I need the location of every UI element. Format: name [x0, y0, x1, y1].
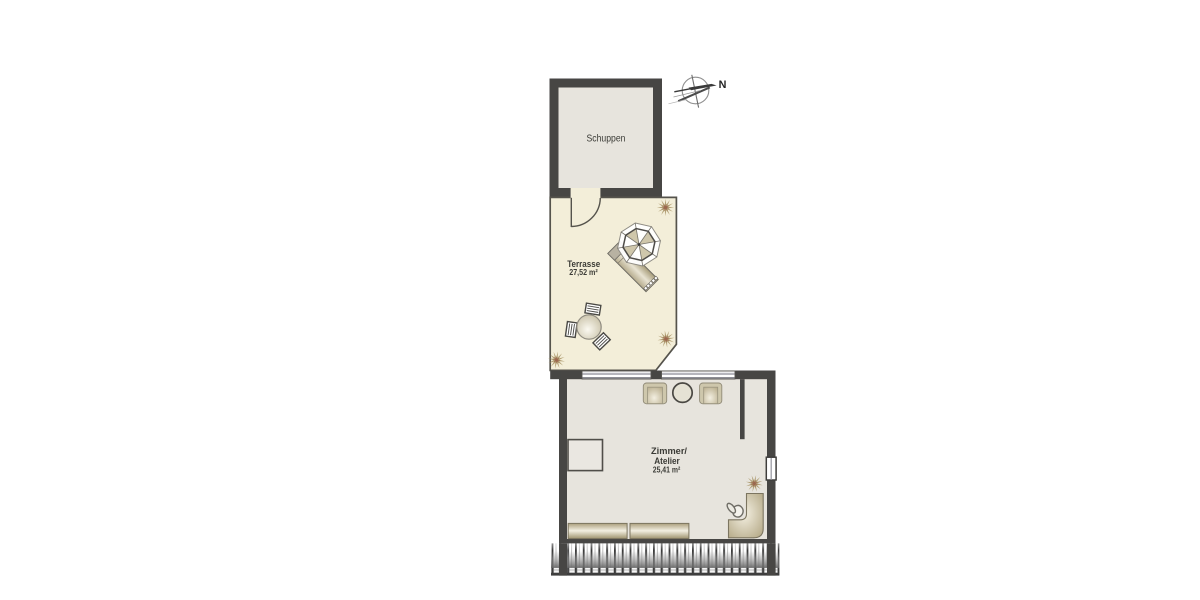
svg-text:N: N: [719, 79, 727, 91]
svg-text:Zimmer/: Zimmer/: [651, 446, 687, 456]
svg-text:Schuppen: Schuppen: [587, 133, 626, 144]
svg-text:25,41 m²: 25,41 m²: [653, 466, 681, 475]
svg-text:27,52 m²: 27,52 m²: [569, 268, 598, 277]
